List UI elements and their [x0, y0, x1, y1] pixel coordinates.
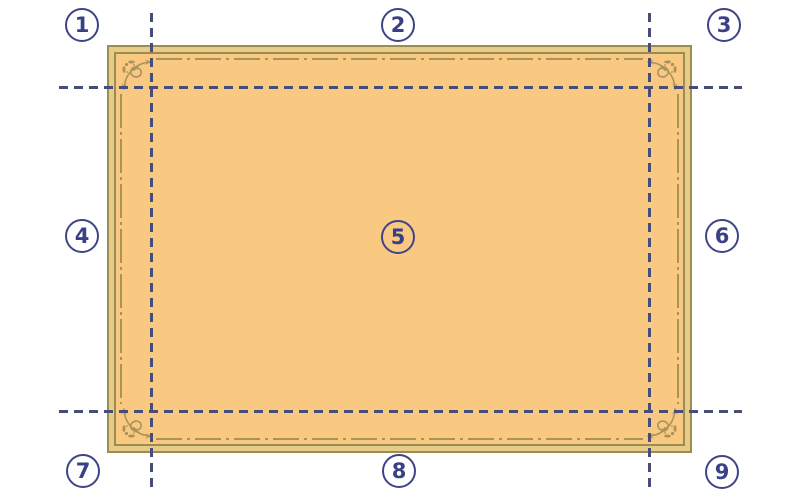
ornament-rule-right — [677, 94, 679, 404]
floral-corner-icon — [640, 401, 682, 443]
floral-corner-icon — [640, 55, 682, 97]
region-marker-center: 5 — [381, 220, 415, 254]
region-marker-bottom-left: 7 — [66, 454, 100, 488]
nine-slice-diagram: 1 2 3 4 5 6 7 8 9 — [0, 0, 800, 500]
ornament-rule-top — [156, 58, 643, 60]
region-marker-top-right: 3 — [707, 8, 741, 42]
slice-guide-horizontal-top — [59, 86, 742, 89]
ornament-rule-bottom — [156, 438, 643, 440]
slice-guide-vertical-right — [648, 13, 651, 492]
region-marker-bottom-center: 8 — [382, 454, 416, 488]
region-marker-top-left: 1 — [65, 8, 99, 42]
slice-guide-horizontal-bottom — [59, 410, 742, 413]
region-marker-middle-right: 6 — [705, 219, 739, 253]
region-marker-top-center: 2 — [381, 8, 415, 42]
region-marker-bottom-right: 9 — [705, 455, 739, 489]
slice-guide-vertical-left — [150, 13, 153, 492]
ornament-rule-left — [120, 94, 122, 404]
region-marker-middle-left: 4 — [65, 219, 99, 253]
